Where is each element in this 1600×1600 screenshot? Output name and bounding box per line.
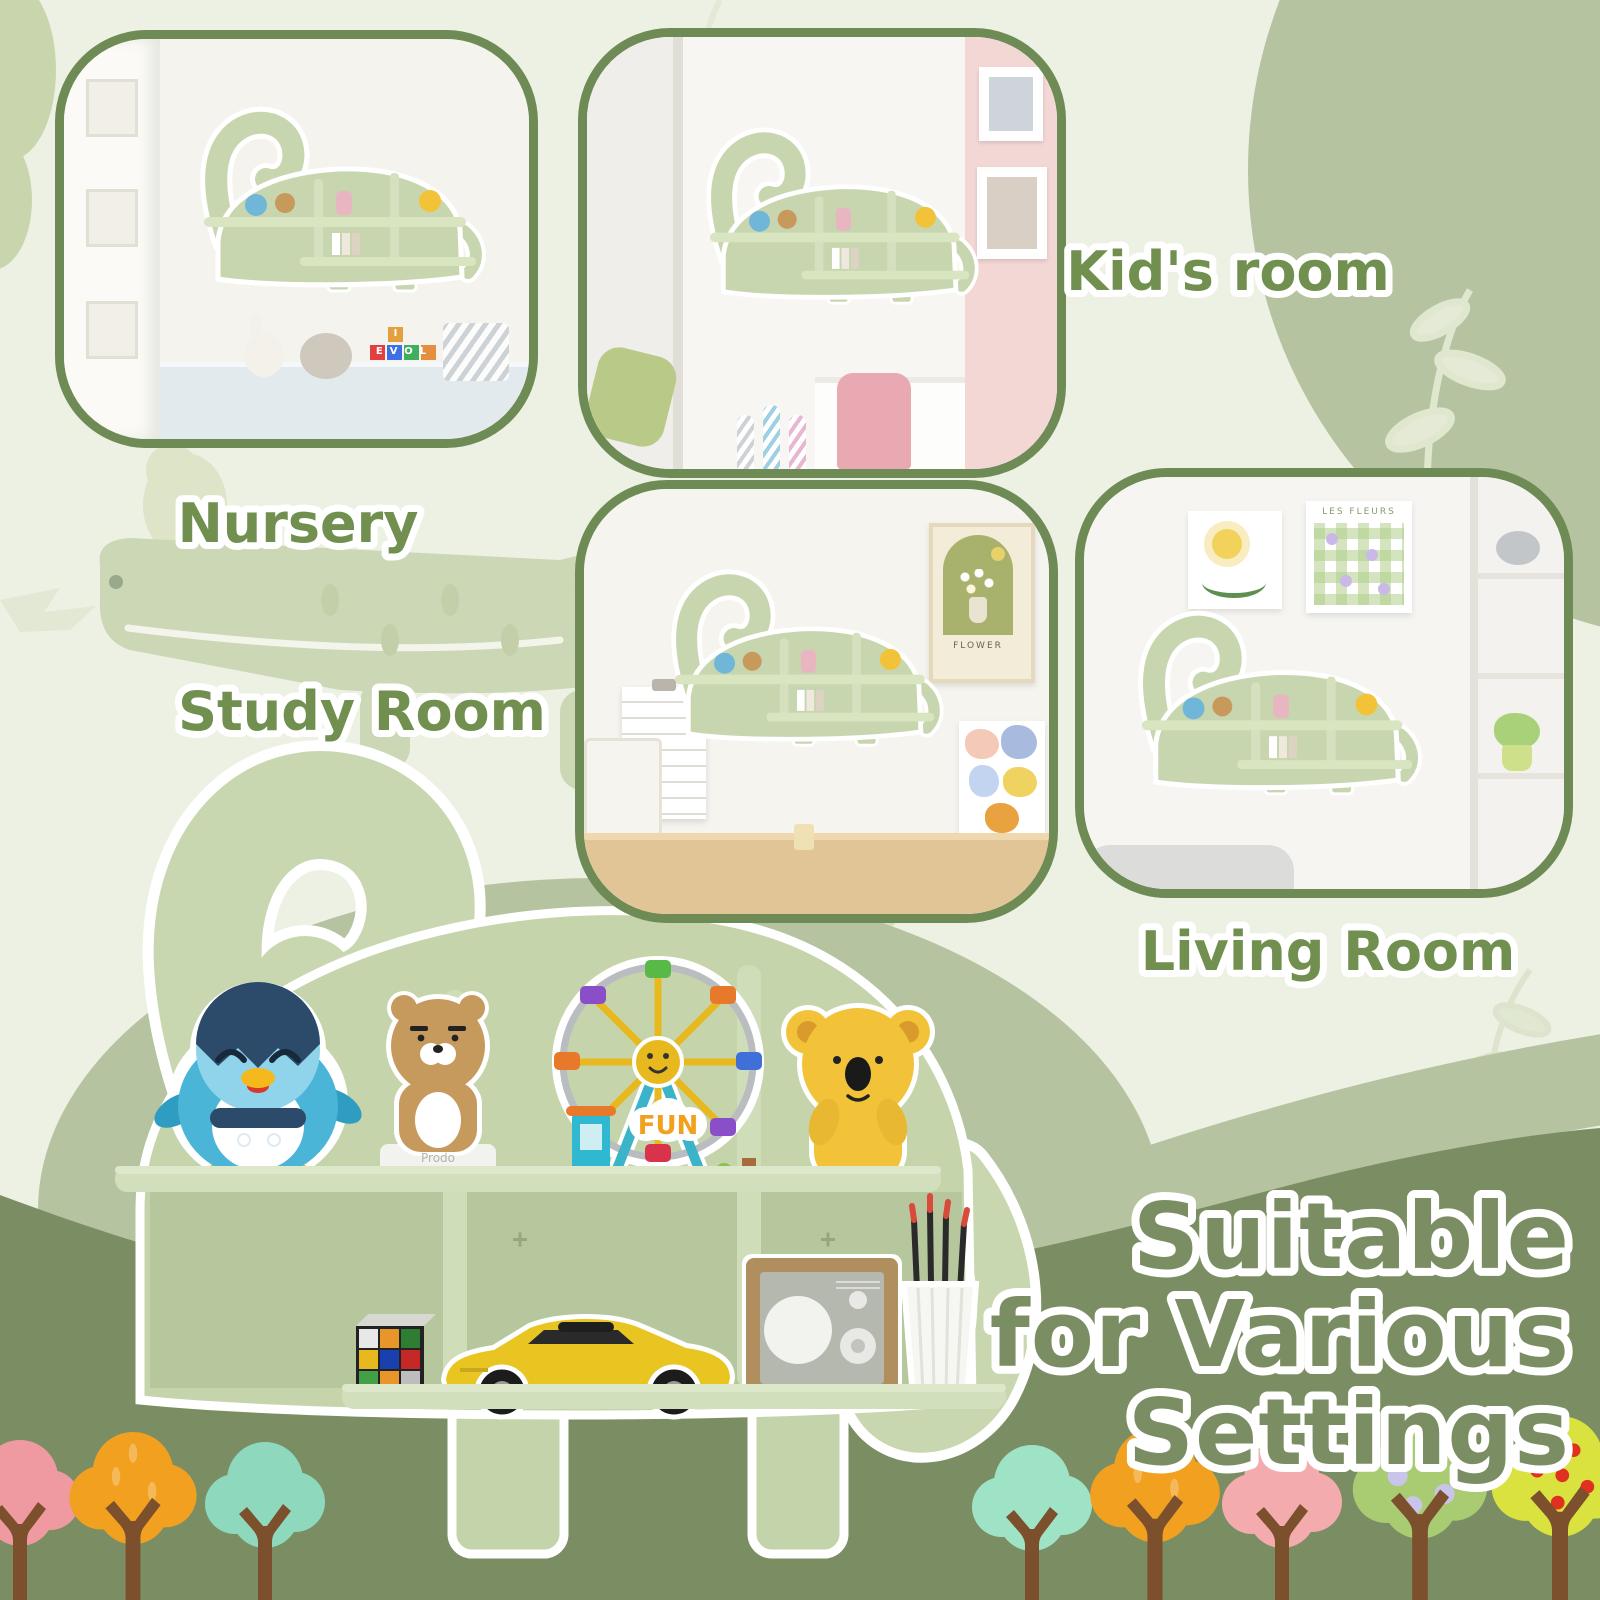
flowers-art-print [959, 721, 1045, 843]
label-study-room: Study Room [192, 670, 592, 756]
chevron-box [443, 323, 509, 381]
svg-text:Kid's room: Kid's room [1066, 240, 1390, 303]
photo-nursery: I EVOL [55, 30, 538, 448]
mini-dino-shelf [1120, 585, 1438, 799]
svg-text:Living Room: Living Room [1141, 920, 1516, 983]
label-nursery: Nursery [148, 482, 488, 568]
photo-study-room: FLOWER [575, 480, 1058, 923]
white-shelving-unit [1470, 477, 1564, 889]
fun-sign-text: FUN [638, 1111, 699, 1141]
photo-kids-room [578, 28, 1066, 478]
bottom-shelf-edge [342, 1384, 1006, 1392]
figure-base-text-1: Prodo [421, 1151, 455, 1165]
headline-line-2: for Various [990, 1281, 1570, 1388]
alphabet-blocks: I EVOL [370, 343, 436, 379]
elephant-plush [300, 333, 352, 379]
bunny-ear [250, 313, 262, 339]
wall-frame [86, 79, 138, 137]
headline-line-3: Settings [1128, 1379, 1570, 1486]
svg-text:Nursery: Nursery [178, 492, 419, 555]
top-shelf-edge [115, 1166, 941, 1174]
headline: Suitable for Various Settings [930, 1158, 1590, 1488]
photo-living-room: LES FLEURS [1075, 468, 1573, 898]
paper-roll [789, 415, 806, 469]
paper-roll [737, 415, 754, 469]
mini-dino-shelf [689, 103, 994, 308]
wall-frame [86, 301, 138, 359]
rubiks-cube [356, 1314, 436, 1394]
mini-dino-shelf [182, 81, 502, 296]
bunny-plush [244, 333, 284, 377]
svg-text:Study Room: Study Room [178, 680, 546, 743]
desk-pencil-cup [794, 824, 814, 850]
headline-line-1: Suitable [1133, 1183, 1570, 1290]
card-caption: LES FLEURS [1306, 507, 1412, 517]
sofa-back [1084, 845, 1294, 889]
product-poster: Prodo KakaoFriends [0, 0, 1600, 1600]
label-kids-room: Kid's room [1068, 230, 1428, 316]
wall-frame [86, 189, 138, 247]
mini-dino-shelf [654, 545, 959, 750]
wooden-desk [584, 833, 1049, 914]
headphones [1496, 531, 1540, 565]
plant-pot [1502, 745, 1532, 771]
paper-roll [763, 405, 780, 469]
wooden-radio [742, 1254, 902, 1398]
plant-leaves [1494, 713, 1540, 749]
label-living-room: Living Room [1158, 910, 1558, 996]
pink-chair [837, 373, 911, 469]
